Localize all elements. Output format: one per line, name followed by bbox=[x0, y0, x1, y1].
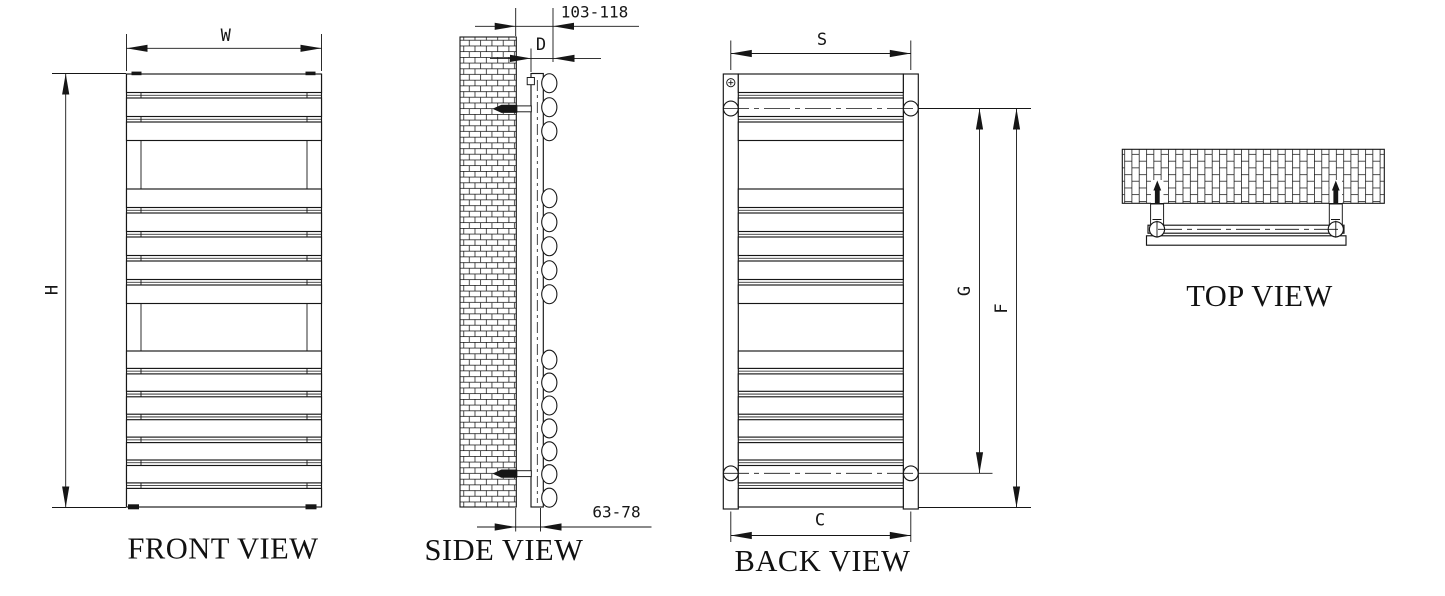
gf-reference-lines bbox=[918, 109, 1031, 508]
radiator-panel bbox=[127, 189, 322, 208]
radiator-panel bbox=[127, 420, 322, 437]
radiator-panel bbox=[127, 122, 322, 141]
front-top-tab-left bbox=[132, 72, 142, 76]
radiator-panel bbox=[127, 488, 322, 507]
top-view-title: TOP VIEW bbox=[1186, 279, 1333, 313]
technical-drawing: W H FRONT VIEW 103-118 D 63-78 SIDE VIEW bbox=[0, 0, 1445, 596]
radiator-bar-back bbox=[738, 420, 903, 437]
back-bar-group bbox=[738, 74, 903, 507]
s-dimension-label: S bbox=[817, 30, 827, 50]
tube-cross-section bbox=[542, 98, 557, 117]
radiator-panel bbox=[127, 397, 322, 414]
arrowhead bbox=[541, 523, 562, 530]
radiator-bar-back bbox=[738, 98, 903, 117]
back-left-rail bbox=[723, 74, 738, 509]
tube-cross-section bbox=[542, 373, 557, 392]
tube-cross-section bbox=[542, 237, 557, 256]
wall-offset-extension-lines bbox=[516, 8, 553, 62]
top-view: TOP VIEW bbox=[1122, 149, 1384, 313]
tube-cross-section bbox=[542, 122, 557, 141]
side-lower-bracket-body bbox=[517, 471, 532, 477]
radiator-bar-back bbox=[738, 122, 903, 141]
tube-cross-section bbox=[542, 285, 557, 304]
radiator-bar-back bbox=[738, 397, 903, 414]
tube-cross-section bbox=[542, 396, 557, 415]
front-view-title: FRONT VIEW bbox=[127, 532, 318, 566]
arrowhead bbox=[495, 523, 516, 530]
arrowhead bbox=[554, 55, 575, 62]
back-offset-dimension-label: 63-78 bbox=[592, 503, 640, 522]
front-foot-left bbox=[128, 504, 139, 509]
arrowhead bbox=[976, 109, 983, 130]
tube-cross-section bbox=[542, 74, 557, 93]
side-upper-bracket-body bbox=[517, 106, 532, 112]
tube-cross-section bbox=[542, 213, 557, 232]
back-right-rail bbox=[903, 74, 918, 509]
radiator-panel bbox=[127, 261, 322, 280]
back-offset-extension-lines bbox=[516, 508, 541, 532]
radiator-bar-back bbox=[738, 213, 903, 232]
radiator-bar-back bbox=[738, 488, 903, 507]
tube-cross-section bbox=[542, 419, 557, 438]
front-panel-group bbox=[127, 74, 322, 507]
arrowhead bbox=[976, 452, 983, 473]
radiator-panel bbox=[127, 443, 322, 460]
radiator-bar-back bbox=[738, 74, 903, 93]
w-dimension-label: W bbox=[221, 26, 232, 46]
radiator-bar-back bbox=[738, 351, 903, 368]
tube-cross-section bbox=[542, 189, 557, 208]
arrowhead bbox=[62, 74, 69, 95]
arrowhead bbox=[731, 532, 752, 539]
radiator-panel bbox=[127, 74, 322, 93]
side-top-bracket bbox=[527, 78, 534, 85]
radiator-bar-back bbox=[738, 443, 903, 460]
arrowhead bbox=[495, 23, 516, 30]
radiator-bar-back bbox=[738, 237, 903, 256]
g-dimension-label: G bbox=[955, 286, 975, 296]
arrowhead bbox=[510, 55, 531, 62]
tube-cross-section bbox=[542, 465, 557, 484]
radiator-panel bbox=[127, 351, 322, 368]
arrowhead bbox=[1013, 109, 1020, 130]
side-tube-group bbox=[542, 74, 557, 507]
radiator-panel bbox=[127, 466, 322, 483]
radiator-bar-back bbox=[738, 189, 903, 208]
tube-cross-section bbox=[542, 350, 557, 369]
arrowhead bbox=[890, 50, 911, 57]
arrowhead bbox=[1013, 487, 1020, 508]
arrowhead bbox=[301, 45, 322, 52]
radiator-bar-back bbox=[738, 285, 903, 304]
h-dimension-label: H bbox=[43, 285, 63, 295]
h-extension-lines bbox=[52, 74, 126, 508]
arrowhead bbox=[62, 487, 69, 508]
wall-offset-dimension-label: 103-118 bbox=[561, 3, 628, 22]
front-foot-right bbox=[306, 504, 317, 509]
radiator-bar-back bbox=[738, 466, 903, 483]
radiator-panel bbox=[127, 374, 322, 391]
tube-cross-section bbox=[542, 488, 557, 507]
depth-dimension-label: D bbox=[536, 35, 546, 55]
arrowhead bbox=[890, 532, 911, 539]
radiator-technical-drawing-page: W H FRONT VIEW 103-118 D 63-78 SIDE VIEW bbox=[0, 0, 1445, 596]
front-top-tab-right bbox=[306, 72, 316, 76]
arrowhead bbox=[553, 23, 574, 30]
arrowhead bbox=[731, 50, 752, 57]
tube-cross-section bbox=[542, 261, 557, 280]
front-view: W H FRONT VIEW bbox=[43, 26, 322, 566]
tube-cross-section bbox=[542, 442, 557, 461]
radiator-bar-back bbox=[738, 374, 903, 391]
side-view-title: SIDE VIEW bbox=[425, 533, 584, 567]
radiator-panel bbox=[127, 98, 322, 117]
f-dimension-label: F bbox=[992, 303, 1012, 313]
arrowhead bbox=[127, 45, 148, 52]
back-view-title: BACK VIEW bbox=[735, 544, 911, 578]
c-dimension-label: C bbox=[815, 511, 825, 531]
back-view: S C G F BACK VIEW bbox=[723, 30, 1031, 578]
radiator-panel bbox=[127, 285, 322, 304]
side-view: 103-118 D 63-78 SIDE VIEW bbox=[425, 3, 652, 568]
top-front-panel-bar bbox=[1147, 236, 1347, 245]
radiator-panel bbox=[127, 213, 322, 232]
radiator-bar-back bbox=[738, 261, 903, 280]
radiator-panel bbox=[127, 237, 322, 256]
